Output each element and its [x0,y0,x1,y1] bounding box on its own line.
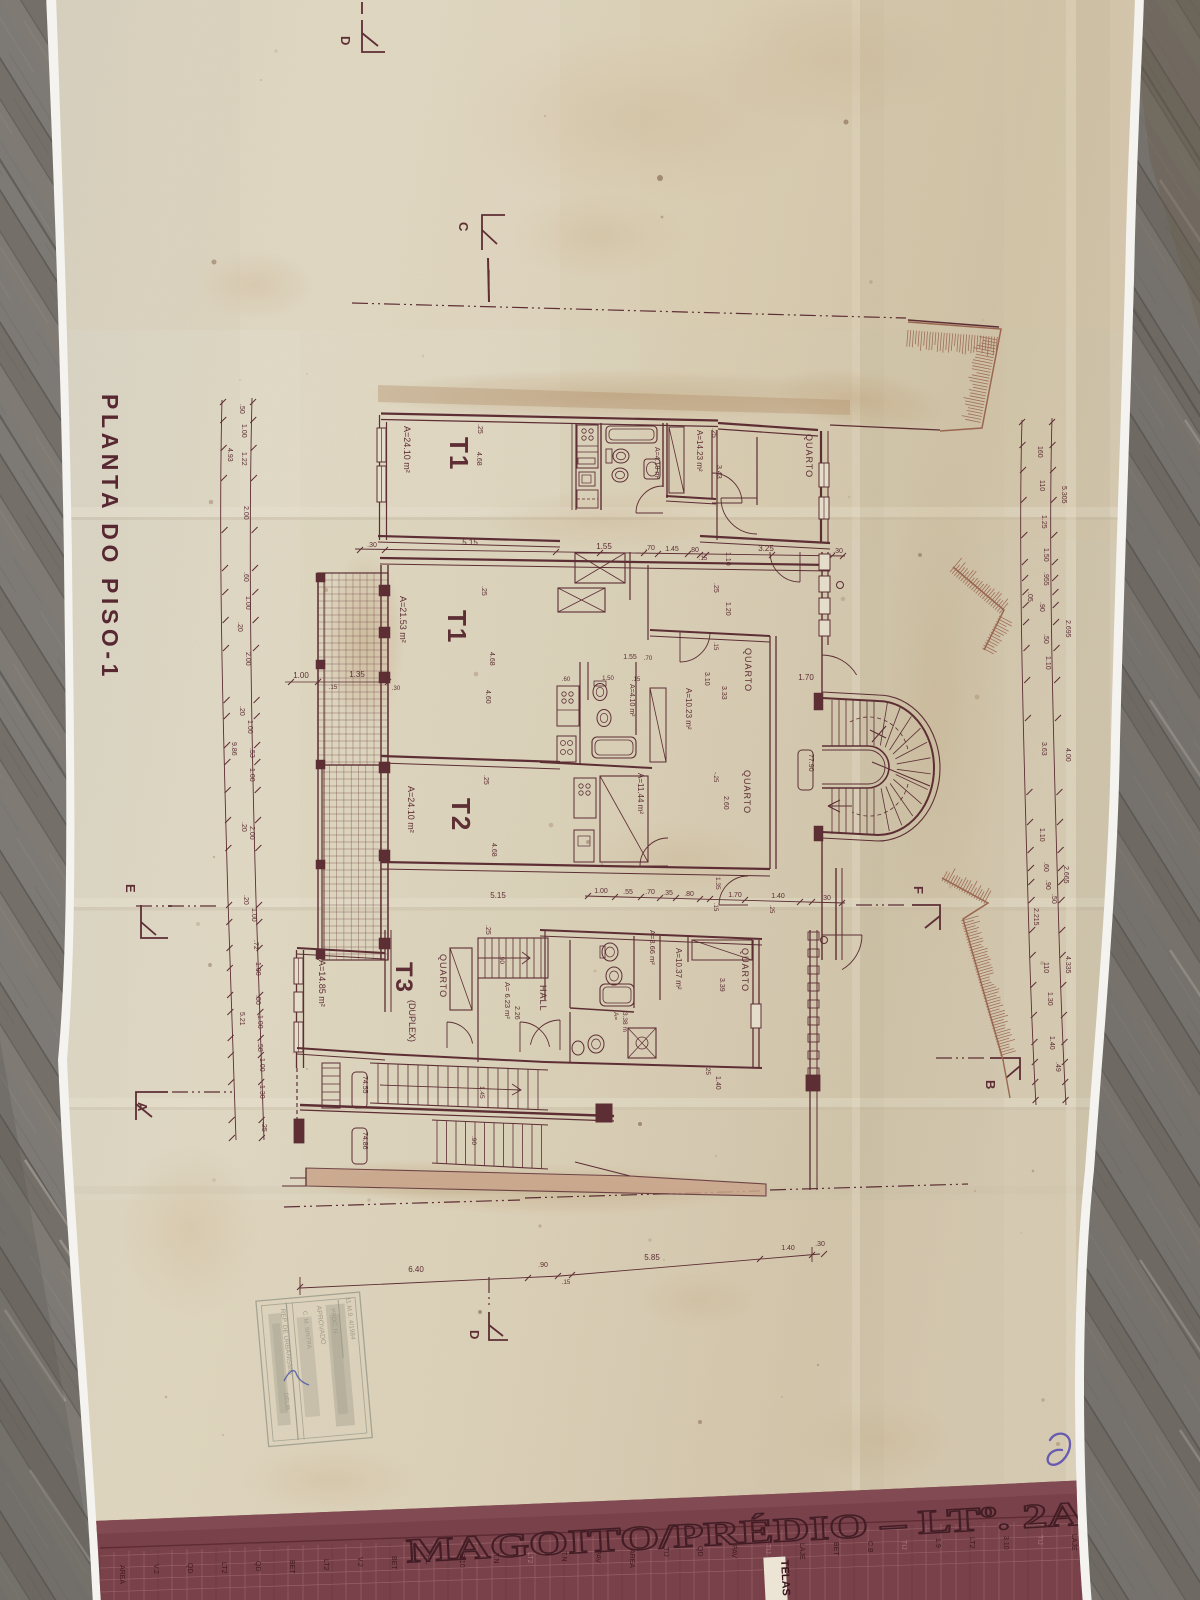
svg-text:.05: .05 [1026,592,1033,602]
svg-text:.70: .70 [644,656,653,662]
svg-text:1.10: 1.10 [1044,656,1051,670]
svg-text:.15: .15 [712,642,718,651]
svg-text:2.00: 2.00 [244,652,251,666]
svg-text:C.B: C.B [866,1541,873,1553]
svg-text:3.38 m: 3.38 m [621,1012,628,1032]
svg-text:1.45: 1.45 [478,1086,485,1099]
svg-text:PAV: PAV [730,1545,737,1558]
svg-text:1.70: 1.70 [798,673,814,682]
svg-text:.35: .35 [663,890,673,897]
svg-text:V.2: V.2 [356,1557,363,1567]
svg-text:2.215: 2.215 [1032,908,1039,926]
svg-text:1.45: 1.45 [665,546,679,553]
svg-text:1.00: 1.00 [256,1015,263,1029]
svg-text:.25: .25 [482,775,489,785]
svg-text:T1: T1 [442,610,472,644]
svg-text:.53: .53 [248,748,255,758]
svg-text:QD: QD [696,1546,703,1557]
svg-text:1.30: 1.30 [1046,992,1053,1006]
svg-text:1.10: 1.10 [724,552,731,566]
svg-text:.50: .50 [1042,634,1049,644]
svg-text:1.00: 1.00 [248,768,255,782]
svg-text:.80: .80 [684,891,694,898]
svg-text:T2: T2 [446,798,476,832]
svg-text:2.26: 2.26 [513,1006,520,1020]
svg-text:.90: .90 [1044,880,1051,890]
svg-text:.20: .20 [242,895,249,905]
svg-text:.60: .60 [562,677,571,683]
svg-text:1.55: 1.55 [623,654,637,661]
svg-text:A=: A= [612,1012,619,1020]
svg-text:BET: BET [390,1556,397,1570]
svg-text:3.10: 3.10 [458,1554,465,1568]
svg-text:.30: .30 [821,895,831,902]
svg-text:2.00: 2.00 [242,506,249,520]
svg-text:77.90: 77.90 [807,754,814,772]
svg-text:T.N: T.N [492,1553,499,1564]
svg-text:1.00: 1.00 [254,962,261,976]
svg-text:4.68: 4.68 [488,652,495,666]
svg-text:.955: .955 [1042,572,1049,586]
svg-text:.90: .90 [498,955,505,964]
svg-text:A=4.10 m²: A=4.10 m² [653,447,660,480]
svg-text:4.68: 4.68 [475,452,482,466]
svg-text:TELAS: TELAS [778,1560,792,1597]
svg-text:.49: .49 [1054,1062,1061,1072]
svg-text:3.43: 3.43 [715,465,722,479]
svg-text:.30: .30 [833,548,843,555]
svg-text:1.20: 1.20 [724,602,731,616]
svg-text:TIJ: TIJ [1036,1535,1043,1545]
svg-text:A=10.37 m²: A=10.37 m² [674,948,683,990]
svg-text:LAJE: LAJE [1070,1534,1077,1551]
svg-text:LT2: LT2 [322,1559,329,1571]
svg-text:A=14.85 m²: A=14.85 m² [317,960,327,1007]
svg-text:.15: .15 [329,685,338,691]
svg-text:.15: .15 [699,556,708,562]
svg-text:2.695: 2.695 [1064,620,1071,638]
svg-text:(DUPLEX): (DUPLEX) [407,1000,417,1042]
svg-text:E: E [123,884,138,893]
svg-text:1.40: 1.40 [1048,1036,1055,1050]
svg-text:TIJ: TIJ [764,1544,771,1554]
svg-text:2.665: 2.665 [1062,866,1069,884]
svg-text:TIJ: TIJ [662,1547,669,1557]
svg-text:1.00: 1.00 [594,888,608,895]
svg-text:.50: .50 [238,404,245,414]
svg-text:QUARTO: QUARTO [743,648,753,692]
svg-text:T1: T1 [444,437,474,471]
svg-text:3.10: 3.10 [1002,1536,1009,1550]
svg-text:A=11.44 m²: A=11.44 m² [636,773,645,814]
svg-text:LT2: LT2 [220,1562,227,1574]
svg-text:A= 6.23 m²: A= 6.23 m² [503,982,512,1019]
svg-text:1.50: 1.50 [1042,548,1049,562]
svg-text:.80: .80 [689,547,699,554]
svg-text:.70: .70 [645,889,655,896]
svg-text:AREA: AREA [628,1549,635,1568]
svg-text:.25: .25 [710,428,717,438]
svg-text:4.335: 4.335 [1064,956,1071,974]
svg-text:T.N: T.N [560,1551,567,1562]
svg-text:.58: .58 [256,1042,263,1052]
svg-text:QUARTO: QUARTO [740,948,750,992]
svg-text:1.40: 1.40 [781,1245,795,1252]
svg-text:LT2: LT2 [968,1537,975,1549]
svg-text:.30: .30 [392,686,401,692]
svg-text:QD: QD [186,1563,193,1574]
svg-text:TIJ: TIJ [900,1540,907,1550]
svg-text:P.L: P.L [424,1555,431,1565]
svg-text:.20: .20 [240,822,247,832]
svg-text:QUARTO: QUARTO [804,434,814,478]
svg-text:A=14.23 m²: A=14.23 m² [695,430,704,472]
svg-text:BET: BET [832,1542,839,1556]
svg-text:A=10.23 m²: A=10.23 m² [684,688,693,730]
svg-text:1.40: 1.40 [714,1076,721,1090]
svg-text:.20: .20 [238,706,245,716]
svg-text:1.00: 1.00 [240,424,247,438]
svg-text:.60: .60 [242,572,249,582]
svg-text:PAV: PAV [594,1550,601,1563]
svg-text:QUARTO: QUARTO [742,770,752,814]
svg-text:1.25: 1.25 [1040,515,1047,529]
svg-text:QD: QD [254,1561,261,1572]
svg-text:1.00: 1.00 [250,908,257,922]
svg-text:.90: .90 [470,1136,477,1145]
svg-text:.25: .25 [768,905,774,914]
svg-text:1.30: 1.30 [258,1085,265,1099]
svg-text:1.35: 1.35 [714,877,721,890]
svg-text:A=21.53 m²: A=21.53 m² [398,596,408,643]
svg-text:A=24.10 m²: A=24.10 m² [406,786,416,833]
svg-text:5.85: 5.85 [644,1253,660,1262]
svg-text:2.00: 2.00 [248,826,255,840]
svg-text:1.40: 1.40 [771,893,785,900]
svg-text:160: 160 [1036,446,1043,458]
svg-text:1.00: 1.00 [244,596,251,610]
svg-text:LT2: LT2 [526,1552,533,1564]
svg-text:4.00: 4.00 [1064,748,1071,762]
svg-text:.72: .72 [252,940,259,950]
svg-text:5.21: 5.21 [238,1012,245,1026]
svg-text:1.00: 1.00 [258,1058,265,1072]
svg-text:9.86: 9.86 [230,742,237,756]
svg-text:D: D [338,36,353,45]
svg-text:.70: .70 [645,545,655,552]
svg-text:A: A [135,1102,150,1112]
svg-text:.55: .55 [623,889,633,896]
svg-text:.90: .90 [538,1262,548,1269]
svg-text:110: 110 [1038,480,1045,491]
svg-text:LAJE: LAJE [798,1543,805,1560]
svg-text:.30: .30 [367,542,377,549]
svg-text:D: D [467,1330,482,1339]
svg-text:F: F [911,886,926,894]
svg-text:4.60: 4.60 [484,690,491,704]
svg-text:.50: .50 [1050,894,1057,904]
svg-text:1.22: 1.22 [240,452,247,466]
svg-text:A=24.10 m²: A=24.10 m² [402,426,412,473]
svg-text:.25: .25 [260,1122,267,1132]
svg-text:V.2: V.2 [152,1564,159,1574]
svg-text:74.86: 74.86 [361,1132,368,1150]
svg-text:-.25: -.25 [712,772,718,783]
svg-text:74.55: 74.55 [361,1076,368,1094]
svg-text:.60: .60 [1042,862,1049,872]
svg-text:6.40: 6.40 [408,1265,424,1274]
svg-text:.15: .15 [562,1280,571,1286]
svg-text:3.33: 3.33 [720,686,727,700]
svg-text:QUARTO: QUARTO [438,954,448,998]
svg-text:3.25: 3.25 [758,544,774,553]
svg-text:1.00: 1.00 [293,671,309,680]
svg-text:HALL: HALL [538,985,548,1012]
svg-text:.50: .50 [254,995,261,1005]
svg-text:.25: .25 [480,586,487,596]
svg-text:C: C [456,222,471,232]
svg-text:.25: .25 [712,583,719,593]
svg-text:3.39: 3.39 [718,978,725,992]
svg-text:1.9: 1.9 [934,1538,941,1548]
svg-text:A=4.10 m²: A=4.10 m² [628,684,635,717]
svg-text:AREA: AREA [118,1565,125,1584]
svg-text:1.10: 1.10 [1038,828,1045,842]
svg-text:.25: .25 [476,424,483,434]
svg-text:B: B [983,1080,998,1089]
svg-text:BET: BET [288,1560,295,1574]
svg-text:.30: .30 [815,1241,825,1248]
svg-text:3.10: 3.10 [703,672,710,686]
svg-text:1.35: 1.35 [349,670,365,679]
svg-text:4.93: 4.93 [226,448,233,462]
svg-text:4.68: 4.68 [490,843,497,857]
svg-text:.15: .15 [712,903,718,912]
svg-text:1.00: 1.00 [246,720,253,734]
svg-text:2.60: 2.60 [722,796,729,810]
svg-text:5.15: 5.15 [490,891,506,900]
svg-text:.90: .90 [1038,602,1045,612]
svg-text:A=3.66 m²: A=3.66 m² [648,930,657,965]
svg-text:.25: .25 [704,1066,711,1075]
svg-text:1.70: 1.70 [728,892,742,899]
svg-text:3.63: 3.63 [1040,742,1047,756]
svg-text:PLANTA DO PISO-1: PLANTA DO PISO-1 [97,394,123,681]
svg-text:5.305: 5.305 [1060,486,1067,504]
svg-text:1.55: 1.55 [596,542,612,551]
svg-text:.25: .25 [484,925,491,935]
svg-text:5.15: 5.15 [462,538,478,547]
svg-text:T3: T3 [390,962,417,994]
